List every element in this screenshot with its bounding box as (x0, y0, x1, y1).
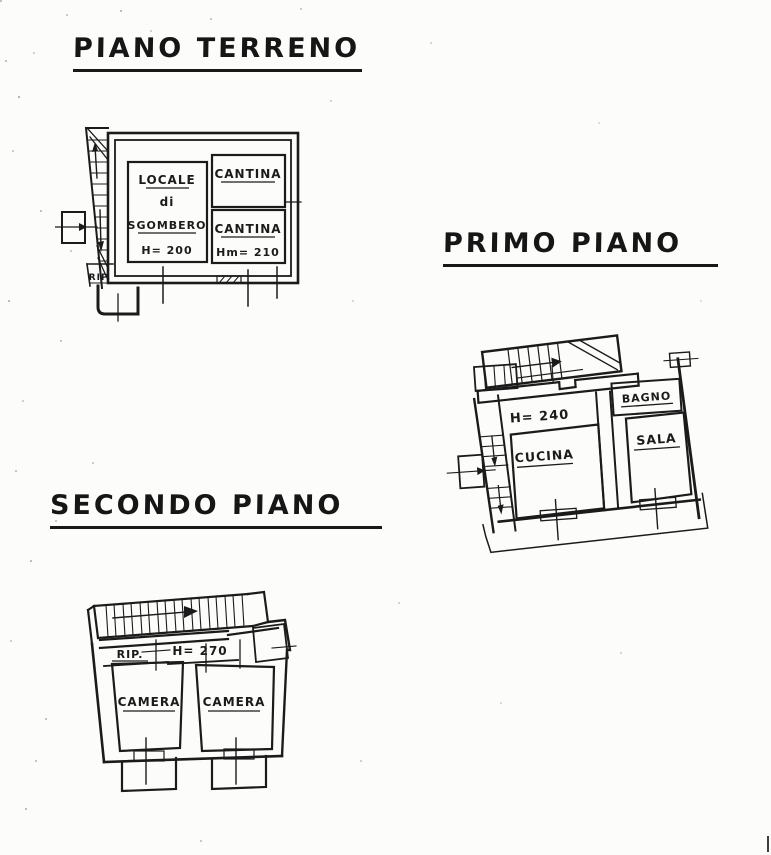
first-floor-plan: H= 240 BAGNO CUCINA SALA (438, 330, 728, 555)
second-floor-plan: RIP. H= 270 CAMERA CAMERA (78, 588, 313, 808)
label-cantina-top: CANTINA (214, 167, 281, 181)
second-balconies (122, 738, 266, 791)
first-windows (497, 486, 702, 544)
label-camera-left: CAMERA (118, 695, 181, 709)
scanned-floorplan-page: PIANO TERRENO (0, 0, 771, 855)
label-second-rip: RIP. (117, 648, 144, 661)
label-cucina: CUCINA (514, 446, 574, 465)
ground-floor-title: PIANO TERRENO (73, 33, 362, 72)
label-ground-rip: RIP. (89, 273, 112, 283)
second-floor-title: SECONDO PIANO (50, 490, 382, 529)
label-locale-height: H= 200 (141, 244, 192, 257)
scan-edge-mark (767, 836, 769, 852)
label-locale-1: LOCALE (138, 173, 195, 187)
first-room-sala (626, 412, 692, 502)
label-sala: SALA (636, 430, 677, 448)
ground-floor-plan: LOCALE di SGOMBERO H= 200 CANTINA CANTIN… (55, 120, 325, 325)
ground-floor-title-text: PIANO TERRENO (73, 33, 361, 64)
first-floor-title: PRIMO PIANO (443, 228, 718, 267)
label-camera-right: CAMERA (203, 695, 266, 709)
ground-windows (163, 267, 277, 306)
label-first-height: H= 240 (509, 408, 569, 427)
stair-arrow-down-icon (498, 504, 505, 514)
first-floor-title-text: PRIMO PIANO (443, 228, 683, 259)
label-locale-2: di (160, 195, 175, 209)
first-staircase-top (482, 335, 621, 387)
label-cantina-bottom-height: Hm= 210 (216, 246, 280, 259)
label-second-height: H= 270 (172, 644, 227, 658)
second-floor-title-text: SECONDO PIANO (50, 490, 344, 521)
label-cantina-bottom: CANTINA (214, 222, 281, 236)
scan-noise (0, 0, 2, 2)
first-room-cucina (510, 425, 604, 519)
stair-arrow-right-icon (184, 606, 198, 618)
ground-room-cantina-top (212, 155, 285, 207)
label-locale-3: SGOMBERO (128, 219, 207, 232)
ground-left-window (55, 212, 97, 243)
second-staircase-band (88, 592, 268, 644)
